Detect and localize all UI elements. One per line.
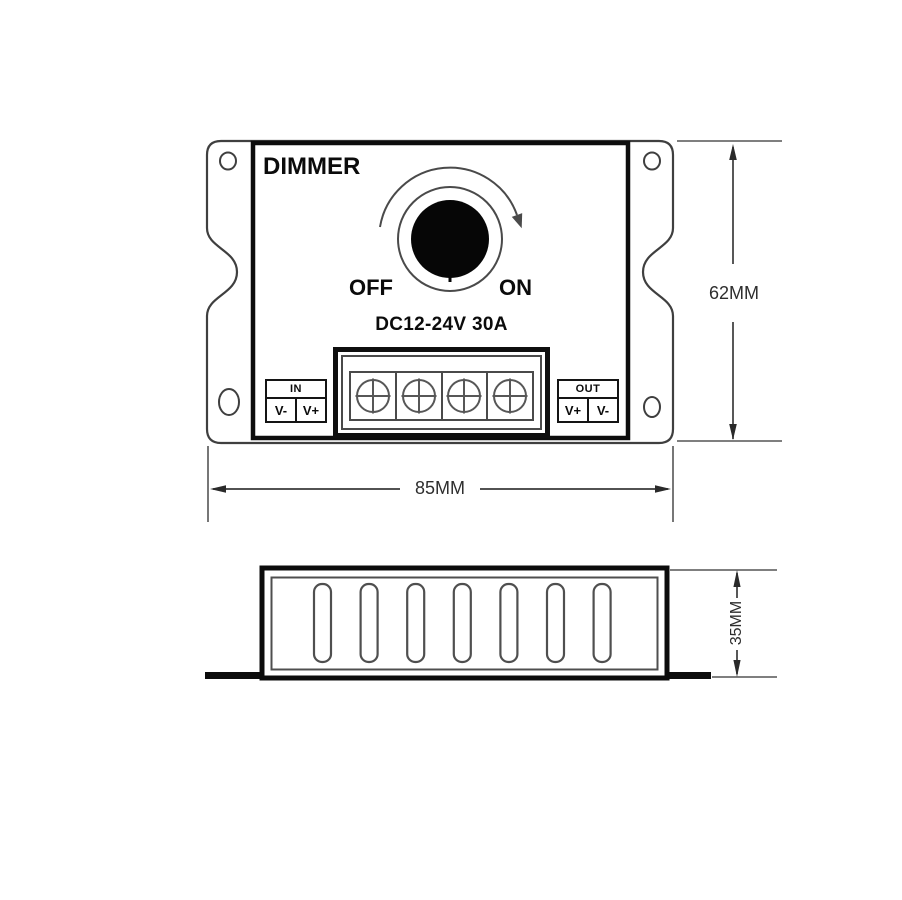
terminal-screw-cell bbox=[488, 371, 534, 421]
out-vminus-label: V- bbox=[587, 399, 617, 421]
rating-label: DC12-24V 30A bbox=[333, 315, 550, 334]
terminal-screw-cell bbox=[443, 371, 489, 421]
knob-icon bbox=[411, 200, 489, 278]
input-terminal-labels: IN V- V+ bbox=[265, 379, 327, 423]
out-vplus-label: V+ bbox=[559, 399, 587, 421]
vent-slot bbox=[500, 584, 517, 662]
terminal-screw-cell bbox=[349, 371, 397, 421]
height-dimension-label: 62MM bbox=[700, 284, 768, 302]
mounting-hole-top-right bbox=[644, 153, 660, 170]
in-vminus-label: V- bbox=[267, 399, 295, 421]
in-label: IN bbox=[267, 381, 325, 397]
out-label: OUT bbox=[559, 381, 617, 397]
screw-terminal-icon bbox=[400, 377, 438, 415]
width-dimension-label: 85MM bbox=[402, 479, 478, 497]
terminal-block bbox=[333, 347, 550, 438]
mounting-hole-bottom-left bbox=[219, 389, 239, 415]
on-label: ON bbox=[499, 277, 532, 299]
vent-slot bbox=[361, 584, 378, 662]
terminal-block-inner bbox=[341, 355, 542, 430]
vent-slot bbox=[454, 584, 471, 662]
screw-terminal-icon bbox=[354, 377, 392, 415]
off-label: OFF bbox=[349, 277, 393, 299]
vent-slot bbox=[314, 584, 331, 662]
terminal-screw-row bbox=[349, 371, 534, 421]
device-title: DIMMER bbox=[263, 155, 360, 179]
vent-slot bbox=[547, 584, 564, 662]
side-view-drawing bbox=[200, 550, 800, 710]
dimmer-dimension-drawing: DIMMER OFF ON DC12-24V 30A IN V- V+ OUT … bbox=[0, 0, 902, 900]
terminal-screw-cell bbox=[397, 371, 443, 421]
mounting-hole-bottom-right bbox=[644, 397, 660, 417]
screw-terminal-icon bbox=[445, 377, 483, 415]
output-terminal-labels: OUT V+ V- bbox=[557, 379, 619, 423]
mounting-hole-top-left bbox=[220, 153, 236, 170]
screw-terminal-icon bbox=[491, 377, 529, 415]
vent-slot bbox=[594, 584, 611, 662]
in-vplus-label: V+ bbox=[295, 399, 325, 421]
side-height-dimension-label: 35MM bbox=[712, 598, 762, 648]
vent-slot bbox=[407, 584, 424, 662]
